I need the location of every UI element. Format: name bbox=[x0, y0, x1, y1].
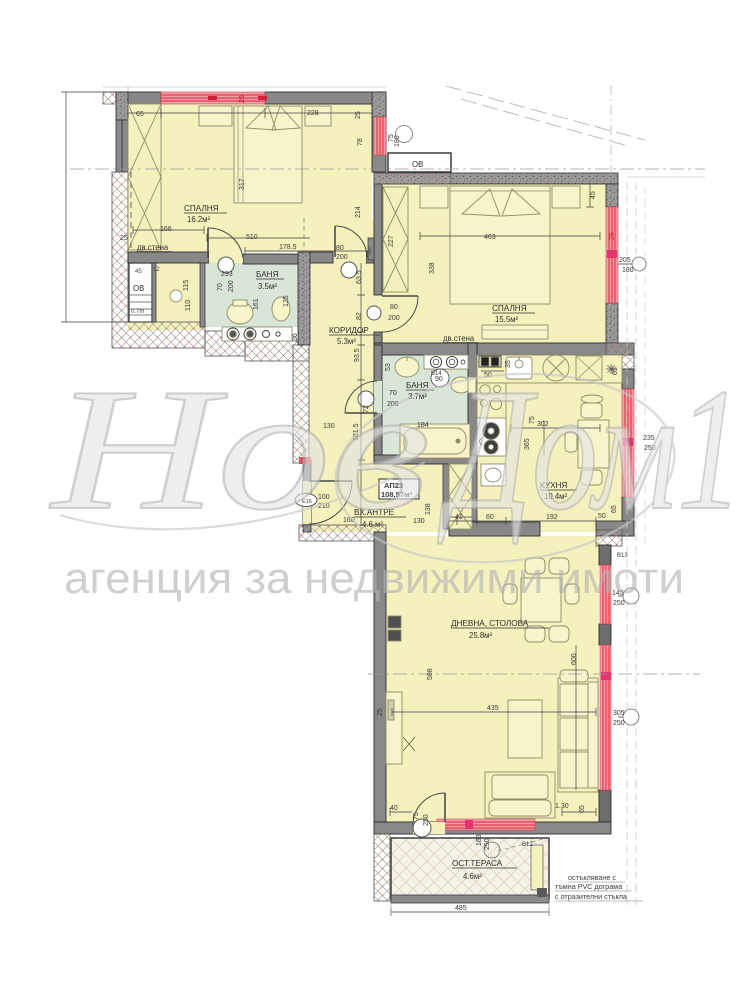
svg-text:180: 180 bbox=[622, 267, 634, 274]
svg-text:82: 82 bbox=[356, 312, 363, 320]
svg-text:161: 161 bbox=[253, 298, 260, 310]
svg-text:293: 293 bbox=[221, 271, 233, 278]
svg-text:65: 65 bbox=[579, 805, 586, 813]
svg-text:250: 250 bbox=[423, 814, 430, 826]
svg-text:338: 338 bbox=[429, 262, 436, 274]
svg-text:78: 78 bbox=[357, 138, 364, 146]
svg-text:214: 214 bbox=[355, 206, 362, 218]
svg-text:250: 250 bbox=[484, 838, 491, 850]
svg-text:Нов: Нов bbox=[49, 352, 430, 546]
svg-text:178.5: 178.5 bbox=[279, 244, 297, 251]
svg-text:с отразителни стъкла: с отразителни стъкла bbox=[555, 892, 627, 901]
svg-text:3.5м²: 3.5м² bbox=[258, 282, 277, 291]
svg-text:65: 65 bbox=[136, 111, 144, 118]
svg-text:110: 110 bbox=[185, 300, 192, 311]
svg-text:КОРИДОР: КОРИДОР bbox=[329, 326, 369, 335]
svg-text:70: 70 bbox=[217, 283, 224, 291]
svg-text:463: 463 bbox=[484, 234, 496, 241]
svg-text:25: 25 bbox=[120, 235, 128, 242]
svg-text:15.5м²: 15.5м² bbox=[495, 315, 519, 324]
svg-text:ОСТ.ТЕРАСА: ОСТ.ТЕРАСА bbox=[452, 859, 503, 868]
svg-text:115: 115 bbox=[183, 280, 190, 291]
svg-text:485: 485 bbox=[455, 905, 467, 912]
svg-text:63.5: 63.5 bbox=[356, 270, 363, 284]
svg-text:305: 305 bbox=[613, 710, 625, 717]
svg-text:80: 80 bbox=[336, 245, 344, 252]
svg-text:183: 183 bbox=[476, 834, 483, 846]
svg-text:5.3м²: 5.3м² bbox=[337, 337, 356, 346]
svg-text:180: 180 bbox=[394, 135, 401, 147]
svg-text:25: 25 bbox=[377, 708, 384, 716]
svg-text:228: 228 bbox=[307, 110, 319, 117]
svg-text:435: 435 bbox=[487, 705, 499, 712]
svg-text:12: 12 bbox=[153, 267, 160, 273]
svg-text:200: 200 bbox=[228, 280, 235, 292]
svg-text:25: 25 bbox=[239, 95, 246, 103]
svg-text:0.7m: 0.7m bbox=[131, 309, 144, 315]
svg-text:45: 45 bbox=[135, 269, 142, 275]
svg-text:1.30: 1.30 bbox=[555, 803, 569, 810]
svg-text:ОВ: ОВ bbox=[412, 160, 423, 169]
svg-text:В12: В12 bbox=[522, 842, 533, 848]
svg-text:остъкляване с: остъкляване с bbox=[568, 873, 616, 882]
svg-text:25.8м²: 25.8м² bbox=[469, 631, 493, 640]
svg-text:200: 200 bbox=[388, 315, 400, 322]
svg-text:4.6м²: 4.6м² bbox=[463, 872, 482, 881]
svg-text:БАНЯ: БАНЯ bbox=[256, 270, 279, 279]
svg-text:16.2м²: 16.2м² bbox=[187, 215, 211, 224]
svg-text:25: 25 bbox=[355, 111, 362, 119]
svg-text:ОВ: ОВ bbox=[133, 284, 144, 293]
svg-text:тъмна PVC дограма: тъмна PVC дограма bbox=[555, 882, 622, 891]
svg-text:317: 317 bbox=[239, 178, 246, 190]
svg-text:Дом1: Дом1 bbox=[437, 352, 743, 546]
svg-text:510: 510 bbox=[246, 234, 258, 241]
svg-text:250: 250 bbox=[613, 720, 625, 727]
svg-text:25: 25 bbox=[609, 232, 616, 240]
svg-text:СПАЛНЯ: СПАЛНЯ bbox=[492, 304, 527, 313]
svg-text:166: 166 bbox=[160, 226, 172, 233]
svg-text:ДНЕВНА, СТОЛОВА: ДНЕВНА, СТОЛОВА bbox=[451, 619, 529, 628]
svg-text:45: 45 bbox=[590, 191, 597, 199]
svg-text:агенция за недвижими имоти: агенция за недвижими имоти bbox=[64, 554, 684, 603]
svg-text:дв.стена: дв.стена bbox=[443, 334, 475, 343]
svg-text:80: 80 bbox=[390, 304, 398, 311]
svg-text:36: 36 bbox=[292, 333, 299, 341]
svg-text:В14: В14 bbox=[431, 371, 442, 377]
svg-text:40: 40 bbox=[390, 805, 398, 812]
svg-text:СПАЛНЯ: СПАЛНЯ bbox=[184, 204, 219, 213]
svg-text:588: 588 bbox=[427, 668, 434, 680]
svg-text:200: 200 bbox=[336, 254, 348, 261]
svg-text:205: 205 bbox=[619, 257, 631, 264]
svg-text:227: 227 bbox=[388, 235, 395, 247]
svg-text:75: 75 bbox=[413, 812, 420, 820]
svg-text:125: 125 bbox=[283, 295, 290, 307]
svg-text:600: 600 bbox=[571, 653, 578, 665]
svg-text:дв.стена: дв.стена bbox=[137, 243, 169, 252]
svg-text:90: 90 bbox=[435, 376, 443, 383]
